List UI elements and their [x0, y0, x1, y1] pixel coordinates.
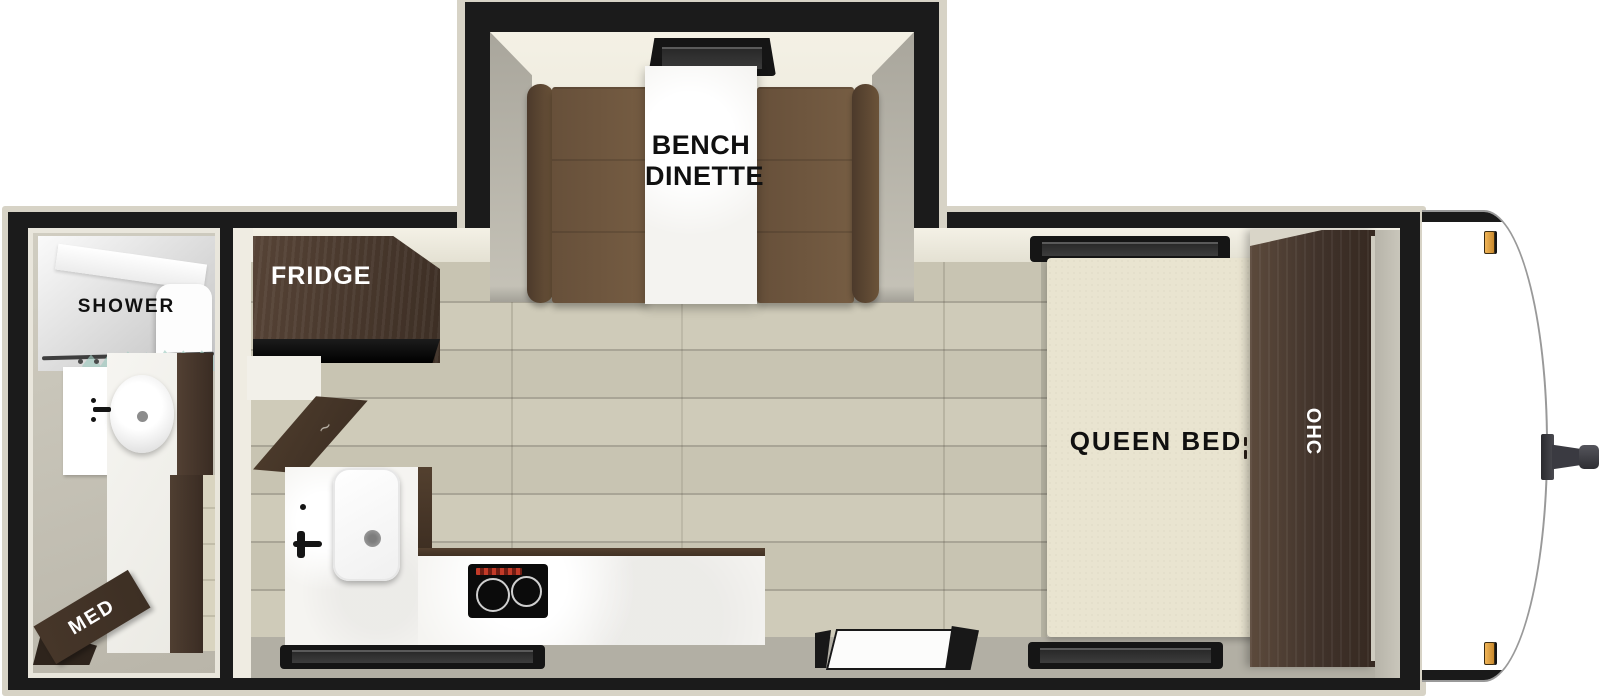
bench-armrest: [527, 84, 554, 303]
dinette-label-line2: DINETTE: [645, 161, 764, 191]
dinette-bench-right: [757, 84, 879, 303]
hitch-arm: [1552, 443, 1582, 471]
faucet-handle-icon: [91, 417, 96, 422]
interior-wall-right: [1375, 230, 1400, 678]
door-panel: [826, 629, 958, 670]
fridge: FRIDGE: [253, 236, 440, 363]
shower-stall: SHOWER: [38, 236, 215, 371]
kitchen-window: [280, 645, 545, 669]
fridge-label: FRIDGE: [271, 262, 371, 291]
bench-cushion: [757, 87, 854, 303]
bathroom-cabinet-lower: [170, 475, 203, 653]
burner-icon: [511, 576, 542, 607]
bathroom-door: [63, 367, 107, 475]
cabinet-handle-icon: [1244, 437, 1247, 446]
dinette-table: BENCH DINETTE: [645, 66, 757, 304]
kitchen-sink: [333, 468, 400, 581]
dinette-bench-left: [527, 84, 649, 303]
window-glass: [1040, 648, 1211, 663]
medicine-cabinet: MED: [33, 573, 153, 673]
marker-light-icon: [1484, 231, 1495, 254]
burner-icon: [476, 578, 510, 612]
counter-nook: [247, 356, 321, 400]
window-glass: [1042, 242, 1218, 256]
entry-door: [815, 626, 980, 672]
sink-drain-icon: [137, 411, 148, 422]
faucet-icon: [93, 407, 111, 412]
shower-label: SHOWER: [38, 296, 215, 318]
counter-edge: [418, 467, 432, 557]
bathroom: SHOWER MED: [28, 228, 220, 678]
med-label: MED: [64, 594, 119, 640]
queen-bed-label: QUEEN BED: [1047, 426, 1265, 457]
dinette-label-line1: BENCH: [652, 130, 751, 160]
interior-wall-left: [233, 228, 253, 678]
sink-drain-icon: [364, 530, 381, 547]
overhead-cabinet: OHC: [1250, 230, 1375, 667]
fold-icon: ∼: [314, 416, 336, 440]
hitch-coupler-icon: [1579, 445, 1599, 469]
cabinet-handle-icon: [1244, 450, 1247, 459]
faucet-handle-icon: [91, 398, 96, 403]
window-glass: [292, 650, 533, 663]
front-cap: [1422, 210, 1548, 682]
bench-cushion: [552, 87, 649, 303]
queen-bed: QUEEN BED: [1047, 258, 1265, 637]
bench-armrest: [852, 84, 879, 303]
bathroom-floor-strip: [203, 475, 215, 651]
bed-foot-window: [1028, 642, 1223, 669]
cooktop: [468, 564, 548, 618]
dinette-label: BENCH DINETTE: [645, 130, 757, 192]
ohc-label: OHC: [1301, 369, 1324, 494]
faucet-spout-icon: [293, 541, 322, 547]
cooktop-controls: [476, 568, 522, 575]
rv-floorplan: SHOWER MED FRIDGE: [0, 0, 1600, 697]
bathroom-cabinet-upper: [177, 353, 213, 475]
marker-light-icon: [1484, 642, 1495, 665]
cabinet-top-trim: [1250, 230, 1322, 246]
slideout-sidewall-left: [490, 32, 532, 302]
sprayer-icon: [300, 504, 306, 510]
